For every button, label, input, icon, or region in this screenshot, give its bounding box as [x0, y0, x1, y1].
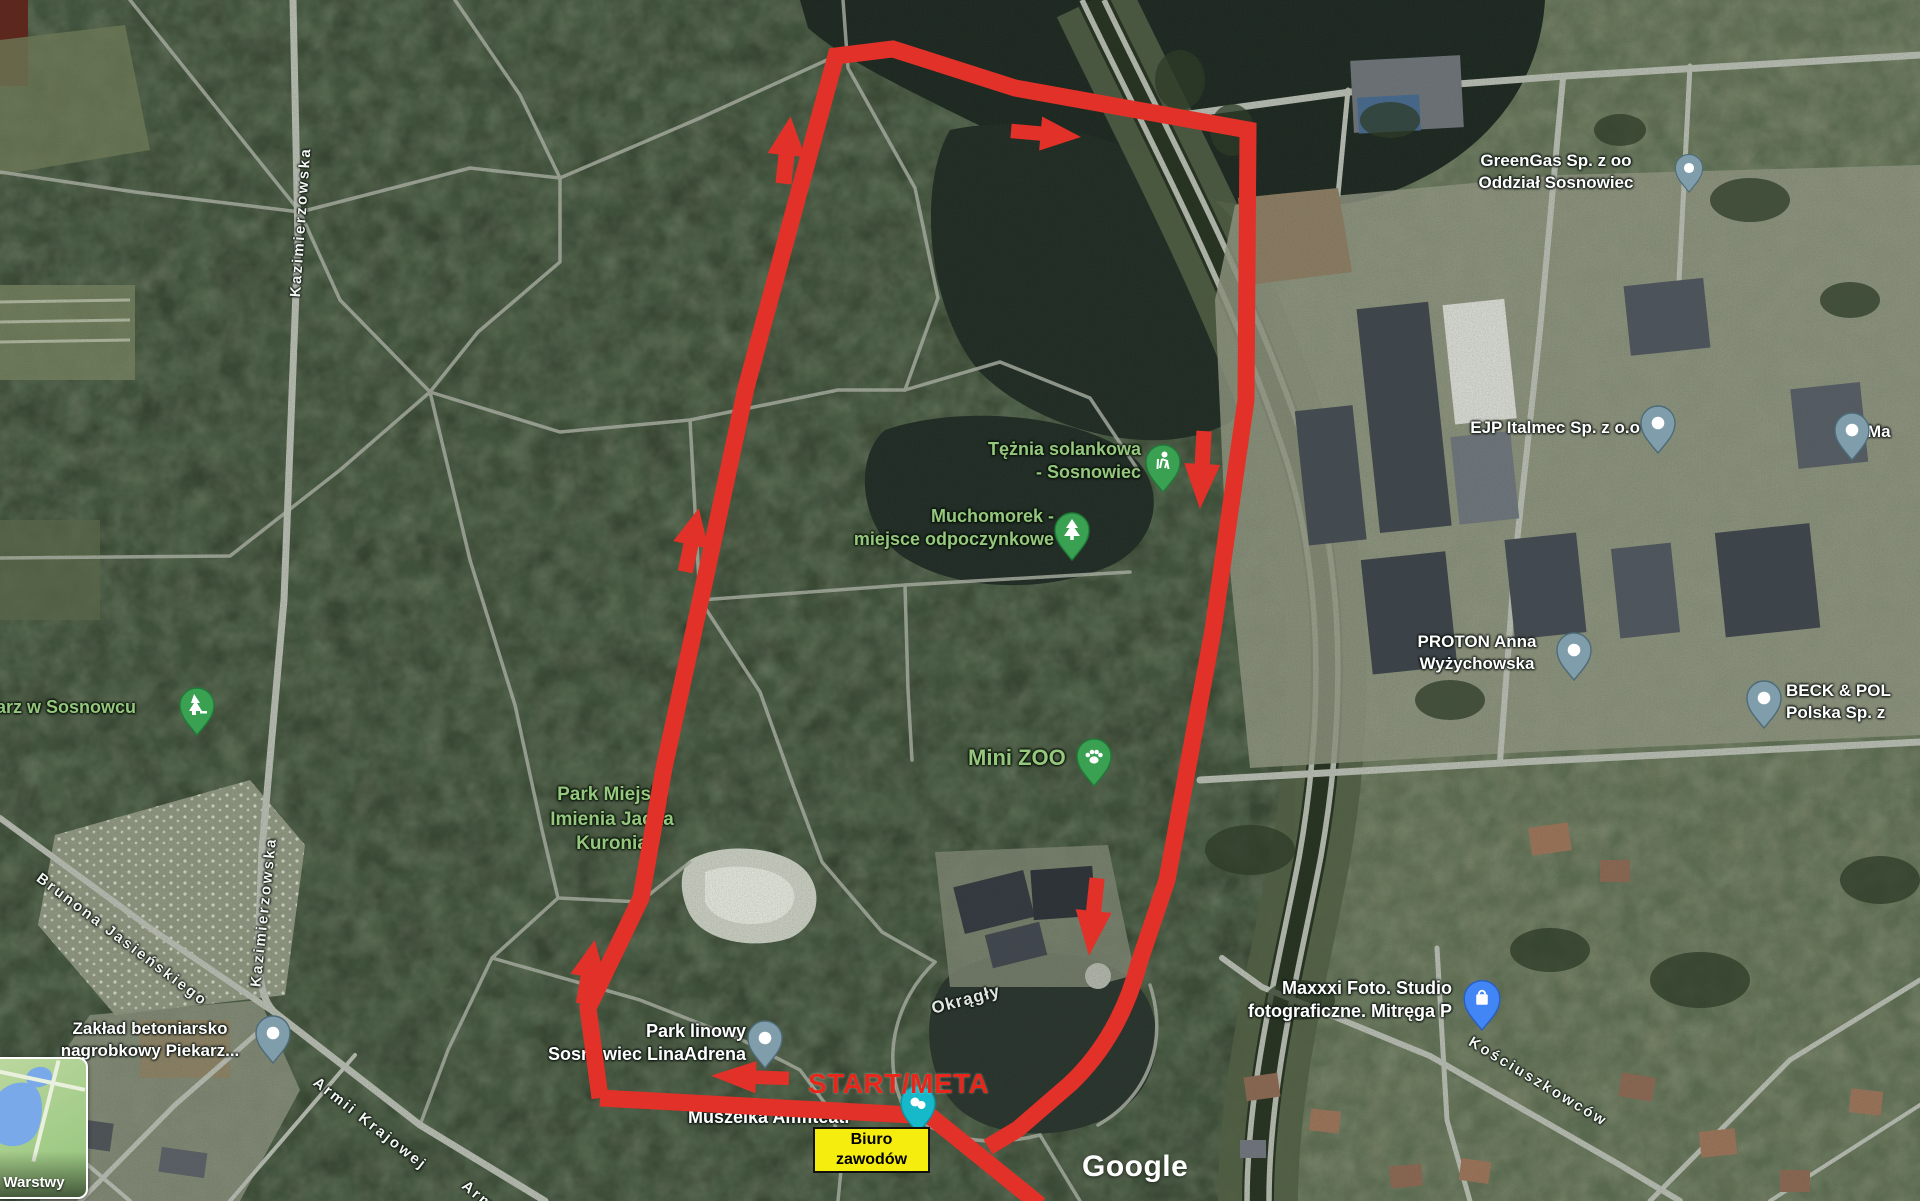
- layers-button[interactable]: Warstwy: [0, 1057, 88, 1199]
- place-pin-icon[interactable]: [1675, 154, 1702, 192]
- shopping-pin-icon[interactable]: [1464, 981, 1500, 1030]
- start-finish-label: START/META: [808, 1068, 989, 1100]
- map-canvas[interactable]: GreenGas Sp. z oo Oddział Sosnowiec EJP …: [0, 0, 1920, 1201]
- paw-pin-icon[interactable]: [1077, 739, 1111, 786]
- place-pin-icon[interactable]: [1641, 406, 1675, 453]
- cemetery-tree-pin-icon[interactable]: [180, 688, 214, 735]
- race-office-callout: Biuro zawodów: [813, 1127, 930, 1173]
- layers-button-label: Warstwy: [0, 1174, 86, 1191]
- tree-pin-icon[interactable]: [1055, 513, 1089, 560]
- place-pin-icon[interactable]: [256, 1016, 290, 1063]
- google-watermark[interactable]: Google: [1082, 1150, 1188, 1184]
- place-pin-icon[interactable]: [1557, 633, 1591, 680]
- map-pins: [0, 0, 1920, 1201]
- hiker-pin-icon[interactable]: [1146, 445, 1180, 492]
- place-pin-icon[interactable]: [1835, 413, 1869, 460]
- place-pin-icon[interactable]: [748, 1021, 782, 1068]
- place-pin-icon[interactable]: [1747, 681, 1781, 728]
